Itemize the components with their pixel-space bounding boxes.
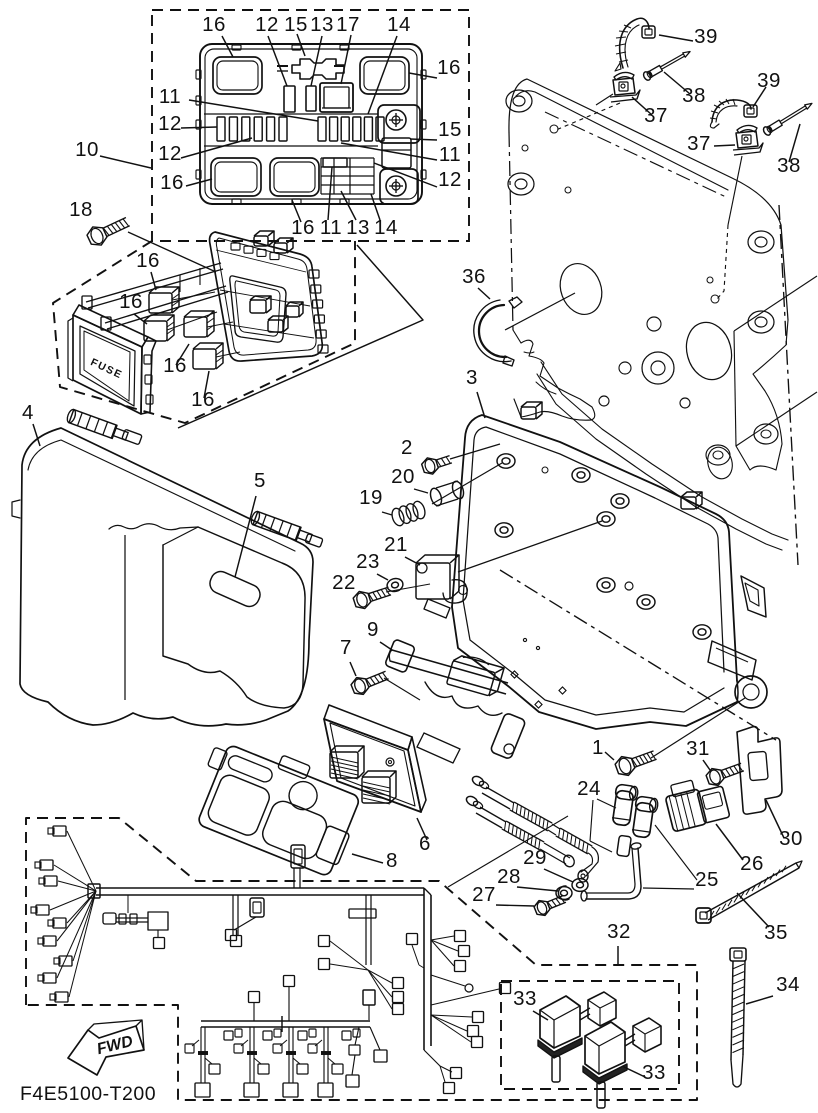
svg-text:16: 16 [119,290,143,313]
svg-text:9: 9 [367,618,379,641]
svg-text:27: 27 [472,883,496,906]
svg-text:31: 31 [686,737,710,760]
svg-text:37: 37 [687,132,711,155]
svg-text:12: 12 [255,13,279,36]
svg-text:12: 12 [158,142,182,165]
svg-text:16: 16 [291,216,315,239]
svg-text:14: 14 [374,216,398,239]
svg-text:36: 36 [462,265,486,288]
svg-text:10: 10 [75,138,99,161]
svg-text:32: 32 [607,920,631,943]
svg-text:16: 16 [136,249,160,272]
svg-text:7: 7 [340,636,352,659]
svg-text:4: 4 [22,401,34,424]
svg-text:8: 8 [386,849,398,872]
svg-text:11: 11 [159,85,181,108]
svg-text:11: 11 [439,143,461,166]
svg-text:18: 18 [69,198,93,221]
svg-text:24: 24 [577,777,601,800]
svg-text:33: 33 [513,987,537,1010]
svg-text:15: 15 [438,118,462,141]
svg-text:33: 33 [642,1061,666,1084]
svg-text:37: 37 [644,104,668,127]
svg-text:16: 16 [163,354,187,377]
svg-text:2: 2 [401,436,413,459]
svg-text:35: 35 [764,921,788,944]
svg-text:23: 23 [356,550,380,573]
svg-text:F4E5100-T200: F4E5100-T200 [20,1083,156,1105]
svg-text:34: 34 [776,973,800,996]
svg-text:3: 3 [466,366,478,389]
svg-text:38: 38 [682,84,706,107]
svg-text:20: 20 [391,465,415,488]
svg-text:12: 12 [158,112,182,135]
svg-text:38: 38 [777,154,801,177]
svg-text:19: 19 [359,486,383,509]
svg-text:13: 13 [346,216,370,239]
svg-text:1: 1 [592,736,604,759]
svg-text:26: 26 [740,852,764,875]
svg-text:30: 30 [779,827,803,850]
svg-text:16: 16 [202,13,226,36]
svg-text:22: 22 [332,571,356,594]
svg-text:5: 5 [254,469,266,492]
svg-text:29: 29 [523,846,547,869]
svg-text:15: 15 [284,13,308,36]
svg-text:16: 16 [160,171,184,194]
svg-text:39: 39 [694,25,718,48]
svg-text:17: 17 [336,13,360,36]
svg-text:11: 11 [320,216,342,239]
svg-text:28: 28 [497,865,521,888]
svg-text:12: 12 [438,168,462,191]
svg-text:16: 16 [191,388,215,411]
svg-text:39: 39 [757,69,781,92]
svg-text:21: 21 [384,533,408,556]
svg-text:13: 13 [310,13,334,36]
svg-text:16: 16 [437,56,461,79]
svg-text:14: 14 [387,13,411,36]
svg-text:25: 25 [695,868,719,891]
